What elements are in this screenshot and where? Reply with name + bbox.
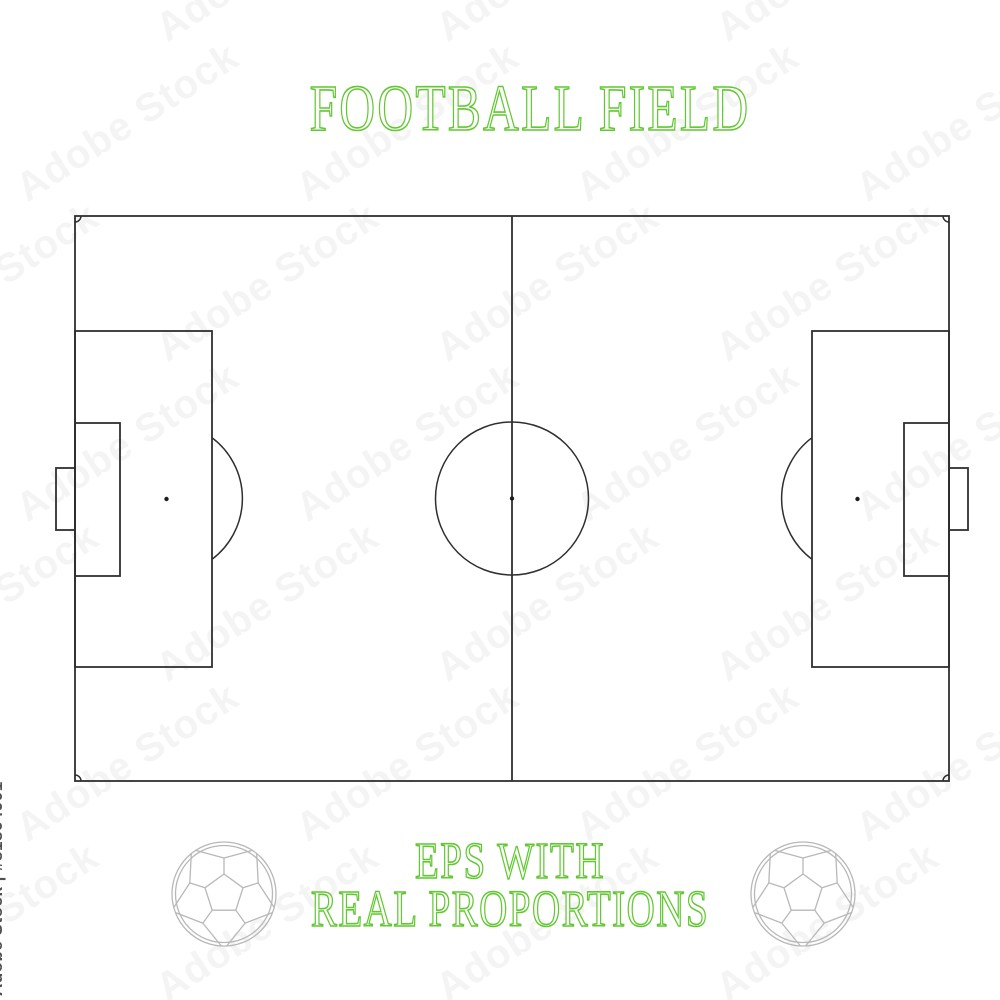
penalty-area-right: [812, 331, 949, 667]
subtitle-line-2: REAL PROPORTIONS: [143, 886, 878, 934]
goal-right: [949, 468, 968, 530]
penalty-arc-left: [212, 438, 242, 560]
corner-arc-bottom-right: [943, 775, 949, 781]
stock-image-canvas: Adobe StockAdobe StockAdobe StockAdobe S…: [0, 0, 1000, 1000]
penalty-spot-left: [164, 497, 168, 501]
goal-left: [56, 468, 75, 530]
page-subtitle: EPS WITH REAL PROPORTIONS: [143, 838, 878, 934]
goal-area-right: [904, 423, 949, 576]
penalty-area-left: [75, 331, 212, 667]
penalty-arc-right: [782, 438, 812, 560]
penalty-spot-right: [855, 497, 859, 501]
center-spot: [510, 496, 514, 500]
subtitle-line-1: EPS WITH: [143, 838, 878, 886]
stock-id-watermark: Adobe Stock | #81864901: [0, 781, 7, 996]
goal-area-left: [75, 423, 120, 576]
